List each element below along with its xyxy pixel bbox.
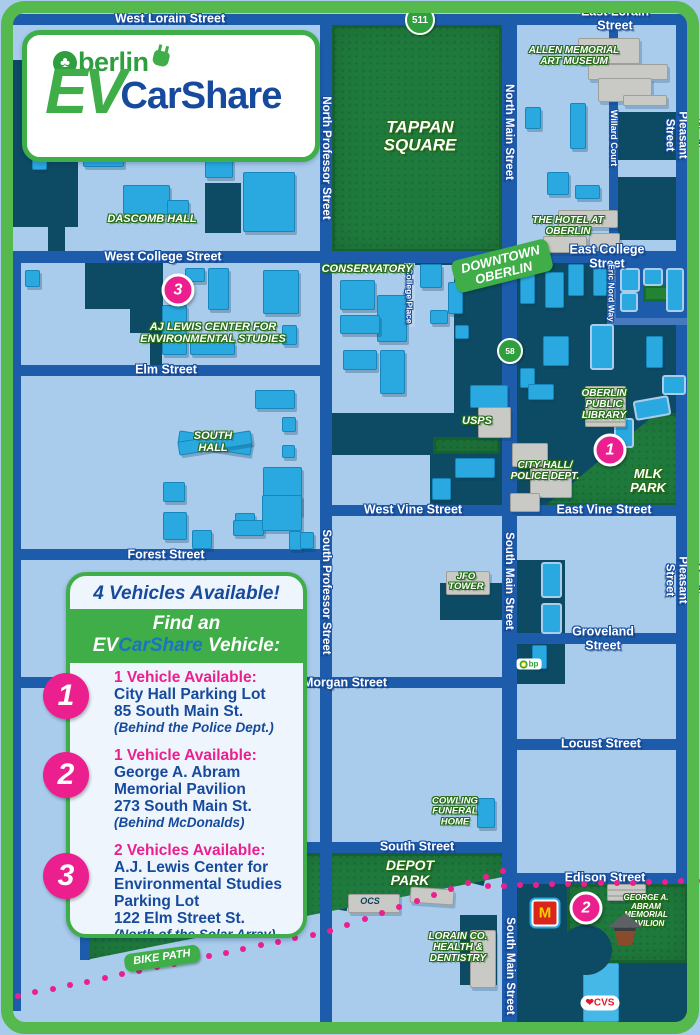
building	[255, 390, 295, 409]
legend-panel: 4 Vehicles Available! Find an EVCarShare…	[66, 572, 307, 938]
label-tappan-square: TAPPAN SQUARE	[384, 119, 457, 156]
bike-path-dot	[598, 880, 604, 886]
label-allen-memorial-art-museum: ALLEN MEMORIAL ART MUSEUM	[529, 46, 620, 68]
bike-path-dot	[549, 881, 555, 887]
bike-path-dot	[223, 950, 229, 956]
label-forest-street: Forest Street	[127, 548, 204, 562]
bike-path-dot	[327, 928, 333, 934]
bike-path-dot	[275, 939, 281, 945]
label-willard-court: Willard Court	[608, 110, 618, 166]
building	[643, 268, 663, 286]
map-marker-1[interactable]: 1	[594, 434, 627, 467]
mcdonalds-arches-icon: M	[532, 900, 559, 927]
label-south-pleasant-street: South Pleasant Street	[663, 556, 700, 603]
bike-path-dot	[258, 942, 264, 948]
street-eric-nord-h	[607, 318, 688, 325]
building	[646, 336, 663, 368]
building	[575, 185, 600, 199]
bike-path-dot	[581, 881, 587, 887]
bike-path-dot	[119, 971, 125, 977]
bike-path-dot	[662, 879, 668, 885]
mcdonalds-logo: M	[530, 898, 561, 929]
building	[620, 292, 638, 312]
building	[243, 172, 295, 232]
label-north-pleasant-street: North Pleasant Street	[663, 111, 700, 158]
label-usps: USPS	[462, 416, 492, 428]
building	[208, 268, 229, 310]
building	[477, 798, 495, 828]
label-morgan-street: Morgan Street	[303, 676, 387, 690]
bike-path-dot	[344, 922, 350, 928]
bike-path-dot	[501, 883, 507, 889]
building	[570, 103, 586, 149]
building	[340, 315, 380, 334]
map-marker-2[interactable]: 2	[570, 892, 603, 925]
label-mlk-park: MLK PARK	[630, 467, 666, 495]
label-eric-nord-way: Eric Nord Way	[606, 264, 615, 322]
building	[163, 482, 185, 502]
building	[590, 324, 614, 370]
bike-path-dot	[483, 874, 489, 880]
building	[623, 95, 667, 106]
label-south-main-street-2: South Main Street	[504, 917, 516, 1015]
building	[123, 185, 170, 215]
label-south-main-street-1: South Main Street	[503, 532, 515, 630]
bike-path-dot	[448, 886, 454, 892]
oberlin-ev-carshare-map: ♣ berlin EV CarShare 4 Vehicles Availabl…	[0, 0, 700, 1035]
label-college-place: College Place	[404, 268, 413, 323]
building	[525, 107, 541, 129]
building	[263, 270, 299, 314]
bike-path-dot	[240, 946, 246, 952]
logo-carshare-text: CarShare	[120, 75, 281, 118]
label-city-hall-police-dept: CITY HALL/ POLICE DEPT.	[511, 461, 580, 483]
building	[377, 295, 407, 342]
park-area	[433, 437, 500, 454]
building	[192, 530, 212, 549]
label-depot-park: DEPOT PARK	[386, 858, 434, 888]
city-block	[330, 455, 430, 506]
label-the-hotel-at-oberlin: THE HOTEL AT OBERLIN	[532, 216, 603, 238]
building	[343, 350, 377, 370]
route-badge-511: 511	[405, 5, 435, 35]
bike-path-dot	[32, 989, 38, 995]
bike-path-dot	[465, 880, 471, 886]
label-east-vine-street: East Vine Street	[557, 503, 652, 517]
bike-path-dot	[102, 975, 108, 981]
label-elm-street: Elm Street	[135, 363, 197, 377]
city-block	[205, 183, 241, 233]
label-ocs: OCS	[360, 897, 380, 907]
bike-path-dot	[694, 878, 700, 884]
building	[430, 310, 448, 324]
building	[541, 562, 562, 598]
legend-entry-3: 2 Vehicles Available: A.J. Lewis Center …	[114, 842, 297, 938]
building	[340, 280, 375, 310]
building	[233, 520, 264, 536]
building	[547, 172, 569, 195]
bike-path-dot	[50, 986, 56, 992]
label-cowling-funeral-home: COWLING FUNERAL HOME	[432, 797, 478, 828]
bike-path-dot	[517, 882, 523, 888]
label-locust-street: Locust Street	[561, 737, 641, 751]
label-aj-lewis-center: AJ LEWIS CENTER FOR ENVIRONMENTAL STUDIE…	[140, 322, 286, 346]
bike-path-dot	[678, 878, 684, 884]
logo-card: ♣ berlin EV CarShare	[22, 30, 320, 162]
label-conservatory: CONSERVATORY	[322, 264, 413, 276]
legend-entry-2: 1 Vehicle Available: George A. Abram Mem…	[114, 747, 297, 831]
label-west-college-street: West College Street	[104, 250, 221, 264]
bp-sunflower-icon	[520, 660, 528, 668]
building	[662, 375, 686, 395]
label-east-lorain-street: East Lorain Street	[573, 6, 658, 33]
building	[282, 417, 296, 432]
bike-path-dot	[362, 916, 368, 922]
building	[470, 385, 508, 408]
building	[432, 478, 451, 500]
label-north-main-street: North Main Street	[503, 84, 515, 180]
street-left-edge	[12, 251, 21, 1011]
building	[300, 532, 314, 549]
legend-find-banner: Find an EVCarShare Vehicle:	[70, 609, 303, 663]
building	[543, 336, 569, 366]
label-oberlin-public-library: OBERLIN PUBLIC LIBRARY	[582, 389, 627, 421]
building	[163, 512, 187, 540]
building	[620, 268, 640, 292]
bike-path-dot	[414, 898, 420, 904]
bike-path-dot	[310, 932, 316, 938]
building	[560, 925, 612, 975]
logo-ev-text: EV	[45, 61, 122, 122]
bike-path-dot	[206, 953, 212, 959]
building	[420, 264, 442, 288]
building	[545, 272, 564, 308]
cvs-logo: ❤CVS	[581, 996, 620, 1011]
city-block	[48, 227, 65, 252]
bike-path-dot	[67, 982, 73, 988]
route-badge-58: 58	[497, 338, 523, 364]
legend-header: 4 Vehicles Available!	[70, 576, 303, 609]
label-south-hall: SOUTH HALL	[194, 431, 233, 455]
legend-number-3: 3	[43, 853, 89, 899]
building	[666, 268, 684, 312]
map-marker-3[interactable]: 3	[162, 274, 195, 307]
label-north-professor-street: North Professor Street	[320, 96, 332, 219]
bike-path-dot	[396, 904, 402, 910]
bike-path-dot	[565, 881, 571, 887]
legend-number-2: 2	[43, 752, 89, 798]
bike-path-dot	[646, 879, 652, 885]
bike-path-dot	[431, 892, 437, 898]
label-lorain-co-health-dentistry: LORAIN CO. HEALTH & DENTISTRY	[429, 932, 488, 964]
bike-path-dot	[84, 979, 90, 985]
label-west-lorain-street: West Lorain Street	[115, 12, 225, 26]
building	[282, 445, 295, 458]
bp-gas-logo: bp	[517, 659, 542, 670]
building	[455, 458, 495, 478]
building	[262, 495, 302, 531]
building	[528, 384, 554, 400]
label-west-vine-street: West Vine Street	[364, 503, 462, 517]
bike-path-dot	[485, 883, 491, 889]
label-groveland-street: Groveland Street	[555, 626, 652, 653]
bike-path-dot	[630, 880, 636, 886]
bike-path-dot	[15, 993, 21, 999]
building	[593, 268, 607, 296]
bike-path-dot	[379, 910, 385, 916]
building	[510, 493, 540, 512]
label-dascomb-hall: DASCOMB HALL	[107, 214, 196, 226]
bike-path-dot	[500, 868, 506, 874]
legend-entry-1: 1 Vehicle Available: City Hall Parking L…	[114, 669, 297, 736]
bike-path-dot	[533, 882, 539, 888]
building	[455, 325, 469, 339]
label-jfo-tower: JFO TOWER	[448, 572, 483, 593]
city-block	[85, 263, 163, 309]
bike-path-dot	[614, 880, 620, 886]
building	[380, 350, 405, 394]
label-south-street: South Street	[380, 840, 454, 854]
building	[25, 270, 40, 287]
gazebo-icon	[607, 913, 643, 947]
label-south-professor-street: South Professor Street	[320, 529, 332, 654]
legend-number-1: 1	[43, 673, 89, 719]
